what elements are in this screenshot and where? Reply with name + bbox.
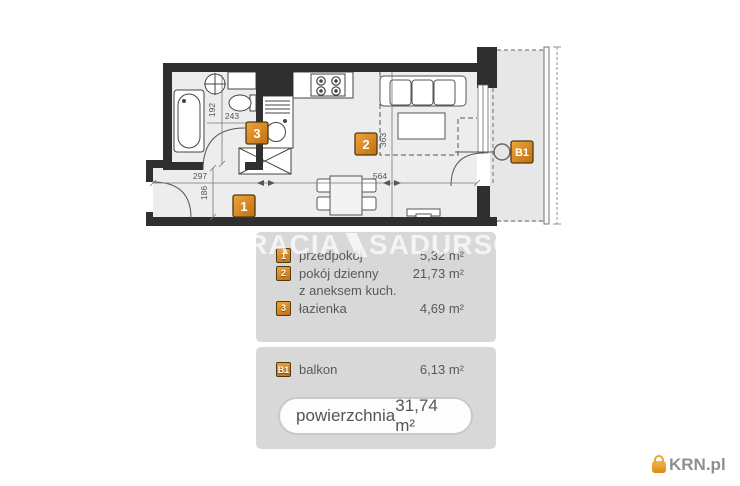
krn-site-name: KRN.pl (669, 455, 726, 475)
svg-text:2: 2 (362, 137, 369, 152)
legend-label: pokój dzienny (299, 266, 413, 281)
krn-padlock-icon (652, 461, 666, 473)
total-area-value: 31,74 m² (395, 396, 455, 436)
legend-marker-b1: B1 (276, 362, 291, 377)
svg-text:3: 3 (253, 126, 260, 141)
legend-row-annex: z aneksem kuch. (276, 282, 464, 300)
toilet (229, 95, 256, 111)
total-area-label: powierzchnia (296, 406, 395, 426)
dim-bath-width: 243 (225, 111, 239, 121)
svg-text:1: 1 (240, 199, 247, 214)
legend-area: 5,32 m² (420, 248, 464, 263)
legend-row-bath: 3 łazienka 4,69 m² (276, 300, 464, 318)
marker-bath: 3 (246, 122, 268, 144)
total-area-pill: powierzchnia 31,74 m² (278, 397, 473, 435)
legend-label: łazienka (299, 301, 420, 316)
dim-living-width: 564 (373, 171, 387, 181)
legend-row-hall: 1 przedpokój 5,32 m² (276, 247, 464, 265)
legend-rooms: 1 przedpokój 5,32 m² 2 pokój dzienny 21,… (256, 232, 496, 342)
legend-area: 4,69 m² (420, 301, 464, 316)
marker-hall: 1 (233, 195, 255, 217)
bathroom-cabinet (228, 72, 256, 89)
legend-marker-1: 1 (276, 248, 291, 263)
legend-label: balkon (299, 362, 420, 377)
balcony-floor (490, 50, 544, 222)
legend-label: przedpokój (299, 248, 420, 263)
legend-area: 21,73 m² (413, 266, 464, 281)
dim-living-height: 363 (378, 133, 388, 147)
dim-hall-width: 297 (193, 171, 207, 181)
legend-marker-2: 2 (276, 266, 291, 281)
legend-area: 6,13 m² (420, 362, 464, 377)
legend-label: z aneksem kuch. (299, 283, 464, 298)
balcony-window (478, 85, 488, 153)
listing-floorplan-page: 297 564 243 192 186 363 1 2 3 (0, 0, 740, 486)
marker-balcony: B1 (511, 141, 533, 163)
wardrobe (239, 148, 291, 174)
svg-text:B1: B1 (515, 147, 529, 159)
marker-living: 2 (355, 133, 377, 155)
coffee-table (398, 113, 445, 139)
krn-branding: KRN.pl (652, 455, 726, 475)
legend-row-balcony: B1 balkon 6,13 m² (276, 361, 464, 379)
legend-row-living: 2 pokój dzienny 21,73 m² (276, 265, 464, 283)
bathtub (174, 90, 204, 152)
measure-line (553, 47, 561, 224)
sofa (380, 76, 466, 106)
dim-bath-height: 192 (207, 103, 217, 117)
dim-hall-height: 186 (199, 186, 209, 200)
legend-marker-3: 3 (276, 301, 291, 316)
